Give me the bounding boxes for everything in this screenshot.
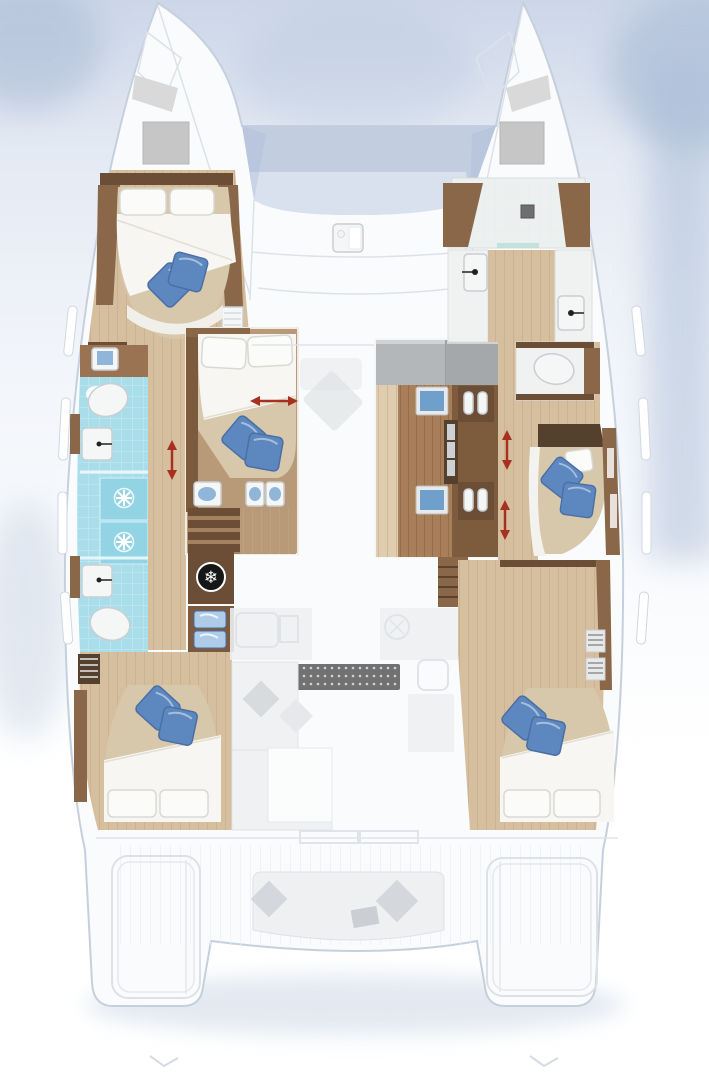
starboard-shower-room (443, 178, 590, 248)
aft-cockpit (120, 845, 590, 945)
snowflake-icon: ❄ (204, 568, 218, 588)
shower-head-icon (115, 489, 134, 508)
pillow (504, 790, 550, 817)
port-appliance-column: ❄ (188, 552, 234, 652)
starboard-toilet-room (516, 342, 600, 400)
starboard-aft-cabin (458, 560, 614, 830)
cockpit-bench (253, 872, 444, 940)
linen-drawer (194, 631, 226, 648)
pillow (170, 189, 214, 215)
headboard (100, 173, 233, 185)
port-shower-room (70, 345, 148, 652)
port-aft-cabin (74, 652, 232, 830)
pillow (201, 337, 247, 369)
pillow (108, 790, 156, 817)
davit-marks (150, 1056, 558, 1066)
shower-head-icon (115, 533, 134, 552)
pillow (160, 790, 208, 817)
blue-cushion (526, 716, 566, 756)
starboard-vanity (448, 250, 592, 342)
blue-cushion (244, 432, 283, 471)
catamaran-floorplan: ❄ (0, 0, 709, 1080)
cabin-steps (188, 508, 240, 554)
blue-cushion (158, 706, 198, 746)
port-corridor (148, 345, 186, 650)
starboard-mid-cabin (529, 424, 620, 556)
linen-drawer (194, 611, 226, 628)
pillow (247, 335, 293, 367)
center-forward-berth (186, 328, 298, 554)
galley-counter (447, 340, 499, 385)
galley-counter (376, 340, 446, 385)
shower-drain (521, 205, 534, 218)
pillow (554, 790, 600, 817)
blue-cushion (560, 482, 596, 518)
pillow (120, 189, 166, 215)
